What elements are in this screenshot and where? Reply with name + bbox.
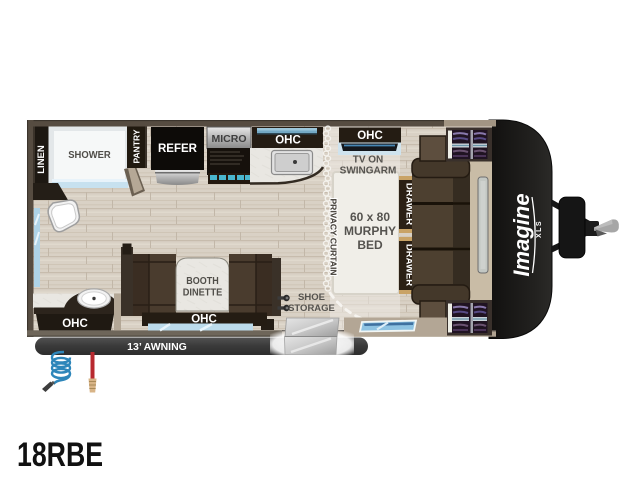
svg-text:SHOE: SHOE [298, 292, 325, 303]
svg-text:SHOWER: SHOWER [68, 149, 111, 161]
svg-text:PANTRY: PANTRY [132, 129, 142, 163]
svg-text:BOOTH: BOOTH [186, 275, 219, 287]
svg-text:OHC: OHC [62, 318, 88, 330]
svg-text:PRIVACY CURTAIN: PRIVACY CURTAIN [329, 199, 339, 276]
svg-text:OHC: OHC [357, 130, 383, 142]
svg-text:REFER: REFER [158, 143, 198, 155]
svg-text:18RBE: 18RBE [17, 436, 103, 474]
svg-text:LINEN: LINEN [36, 145, 47, 174]
svg-text:13’ AWNING: 13’ AWNING [127, 341, 187, 353]
svg-text:BED: BED [357, 238, 383, 252]
svg-text:STORAGE: STORAGE [288, 303, 335, 314]
svg-text:SWINGARM: SWINGARM [340, 166, 397, 177]
svg-text:MURPHY: MURPHY [344, 224, 396, 238]
svg-text:XLS: XLS [536, 220, 543, 238]
svg-text:MICRO: MICRO [212, 133, 247, 145]
svg-text:TV ON: TV ON [353, 155, 384, 166]
svg-text:60 x 80: 60 x 80 [350, 210, 390, 224]
svg-text:OHC: OHC [275, 135, 301, 147]
svg-text:DINETTE: DINETTE [183, 287, 223, 299]
svg-text:Imagine: Imagine [509, 193, 534, 276]
